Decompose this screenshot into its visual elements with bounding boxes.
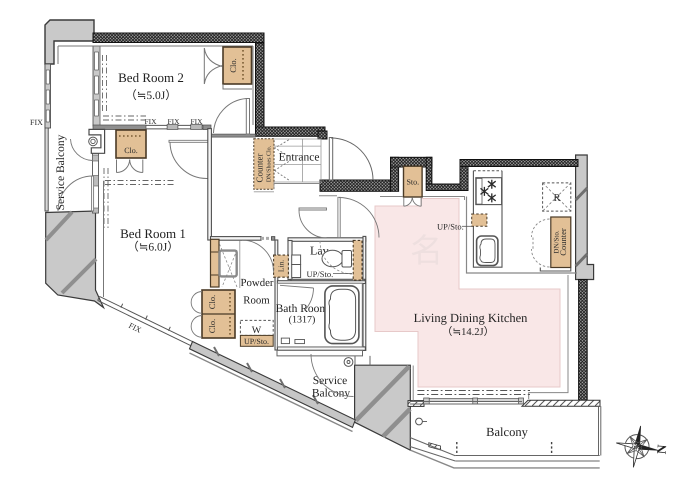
svg-text:Entrance: Entrance	[279, 151, 320, 163]
svg-text:名: 名	[410, 234, 443, 270]
svg-text:Lin.: Lin.	[277, 260, 286, 272]
svg-text:Counter: Counter	[255, 154, 265, 183]
svg-text:(1317): (1317)	[289, 315, 316, 326]
svg-text:FIX: FIX	[144, 117, 157, 126]
svg-text:UP/Sto.: UP/Sto.	[437, 222, 464, 232]
svg-text:Bath Room: Bath Room	[276, 303, 329, 315]
svg-text:UP/Sto.: UP/Sto.	[244, 337, 269, 346]
svg-text:Sto.: Sto.	[406, 178, 419, 187]
svg-text:Balcony: Balcony	[486, 425, 528, 439]
svg-text:Bed Room 2: Bed Room 2	[118, 70, 184, 85]
svg-text:Clo.: Clo.	[228, 58, 238, 72]
svg-text:Service Balcony: Service Balcony	[55, 134, 67, 210]
svg-text:W: W	[252, 325, 262, 336]
svg-text:Clo.: Clo.	[207, 295, 217, 309]
svg-text:Clo.: Clo.	[207, 319, 217, 333]
svg-text:FIX: FIX	[30, 118, 43, 127]
svg-text:Bed Room 1: Bed Room 1	[120, 226, 186, 241]
svg-text:Clo.: Clo.	[124, 146, 138, 155]
svg-text:R: R	[553, 193, 560, 204]
svg-text:UP/Sto.: UP/Sto.	[307, 269, 334, 279]
svg-text:DN/Shoes Clo.: DN/Shoes Clo.	[266, 145, 273, 182]
svg-text:Balcony: Balcony	[312, 388, 351, 400]
svg-text:Counter: Counter	[558, 228, 568, 256]
svg-text:（≒6.0J）: （≒6.0J）	[127, 241, 179, 254]
svg-text:（≒5.0J）: （≒5.0J）	[125, 89, 177, 102]
svg-text:Powder: Powder	[241, 277, 274, 289]
svg-text:（≒14.2J）: （≒14.2J）	[442, 326, 494, 338]
svg-text:Living Dining Kitchen: Living Dining Kitchen	[414, 311, 529, 325]
svg-text:Room: Room	[243, 295, 270, 307]
